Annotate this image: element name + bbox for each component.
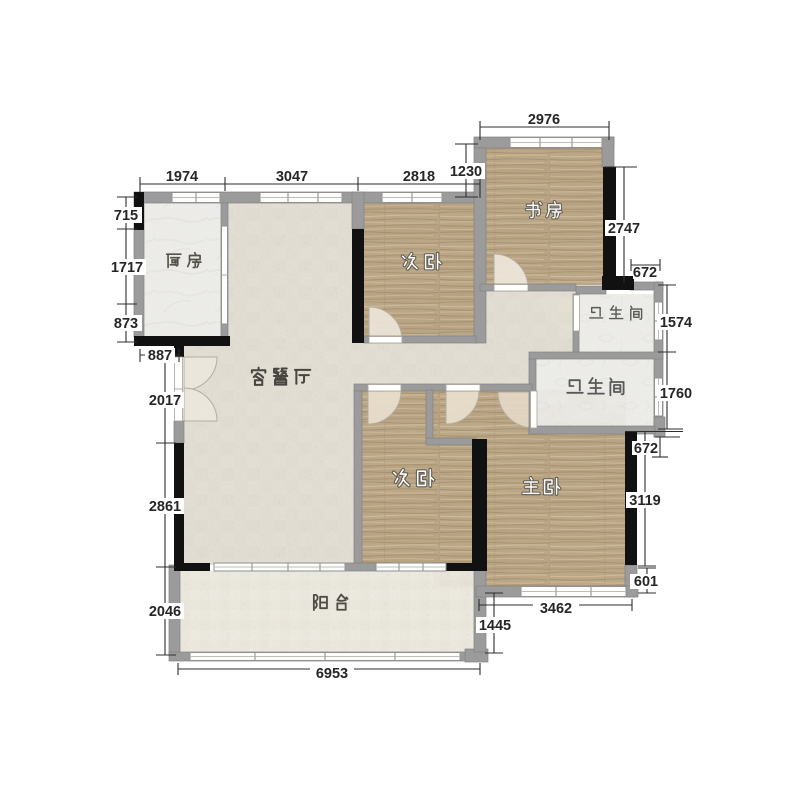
svg-text:2818: 2818 [403,169,435,185]
svg-text:3047: 3047 [276,169,308,185]
svg-text:2046: 2046 [149,604,181,620]
svg-text:2017: 2017 [149,393,181,409]
svg-text:2976: 2976 [528,112,560,128]
svg-text:672: 672 [634,441,658,457]
svg-text:715: 715 [114,208,138,224]
svg-text:1574: 1574 [660,315,692,331]
svg-text:873: 873 [114,316,138,332]
svg-text:672: 672 [633,265,657,281]
svg-text:3462: 3462 [540,601,572,617]
svg-text:1717: 1717 [111,260,143,276]
svg-text:2747: 2747 [608,221,640,237]
svg-text:6953: 6953 [316,666,348,682]
svg-text:3119: 3119 [629,493,660,509]
svg-text:601: 601 [634,574,658,590]
svg-text:1760: 1760 [660,386,692,402]
svg-text:1445: 1445 [479,618,511,634]
svg-text:887: 887 [148,348,172,364]
svg-text:1230: 1230 [450,164,482,180]
svg-text:1974: 1974 [166,169,198,185]
svg-text:2861: 2861 [149,499,181,515]
